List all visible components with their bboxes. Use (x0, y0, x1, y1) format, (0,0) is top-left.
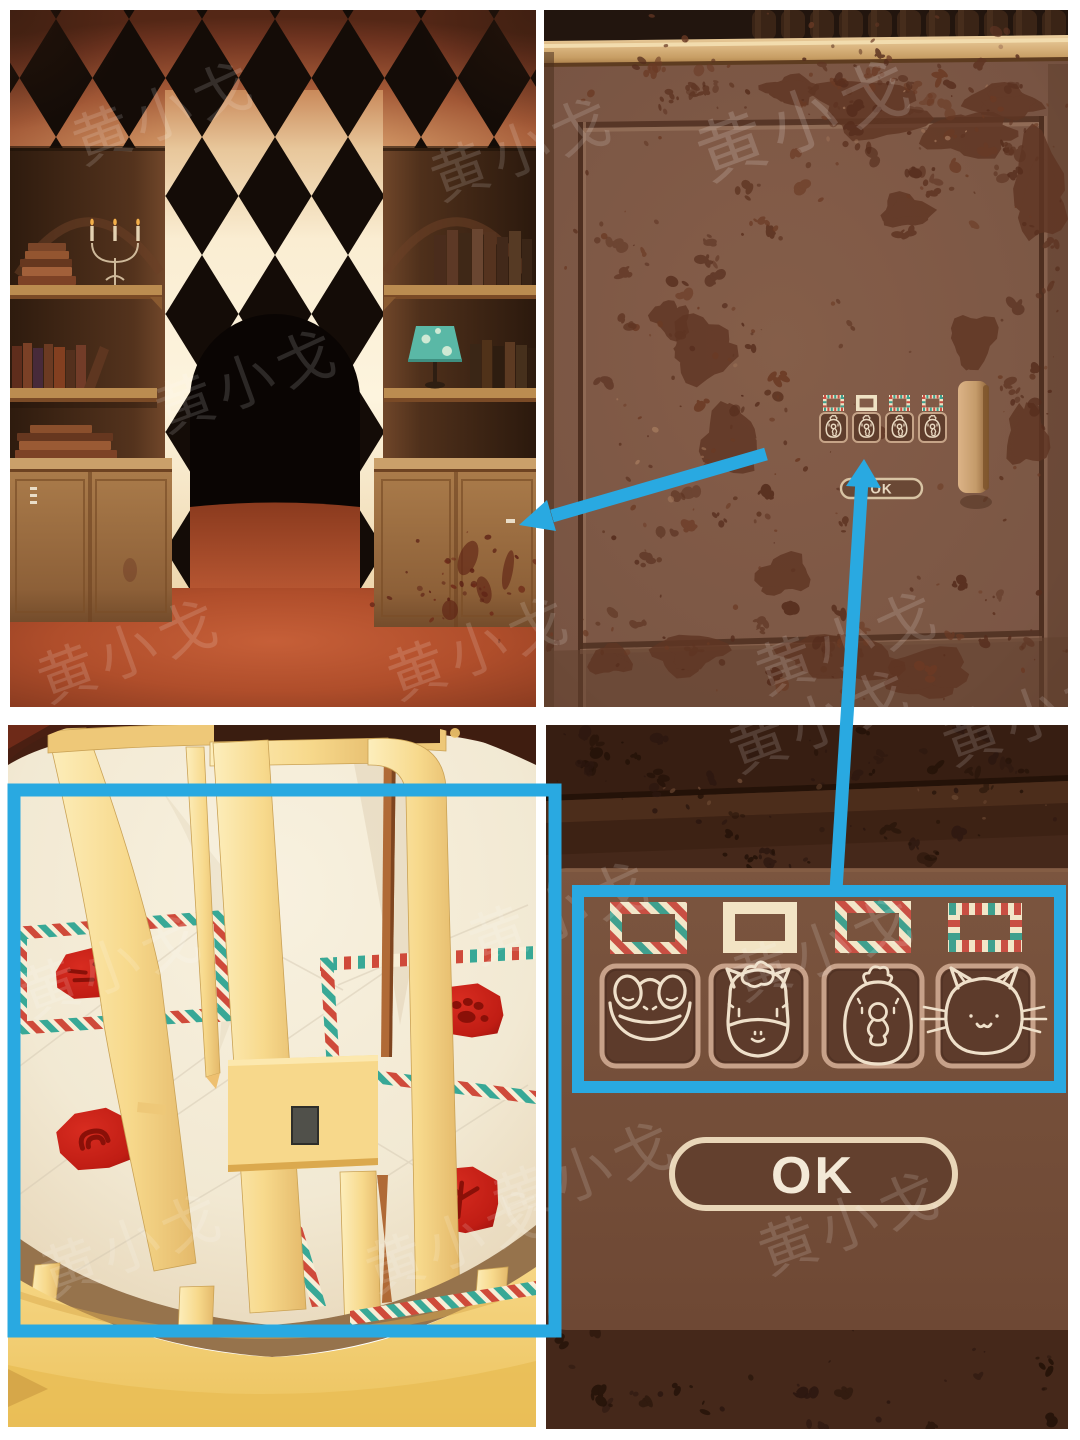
svg-text:黄小戈: 黄小戈 (12, 903, 215, 1030)
svg-text:黄小戈: 黄小戈 (64, 50, 267, 177)
svg-text:黄小戈: 黄小戈 (379, 585, 582, 712)
svg-text:黄小戈: 黄小戈 (147, 318, 350, 445)
svg-text:黄小戈: 黄小戈 (724, 886, 927, 1013)
svg-text:黄小戈: 黄小戈 (422, 86, 625, 213)
svg-text:黄小戈: 黄小戈 (484, 1110, 687, 1237)
svg-text:黄小戈: 黄小戈 (750, 1160, 953, 1287)
svg-text:黄小戈: 黄小戈 (687, 46, 927, 195)
svg-text:黄小戈: 黄小戈 (29, 588, 232, 715)
svg-text:黄小戈: 黄小戈 (934, 651, 1080, 778)
svg-text:黄小戈: 黄小戈 (32, 1182, 235, 1309)
